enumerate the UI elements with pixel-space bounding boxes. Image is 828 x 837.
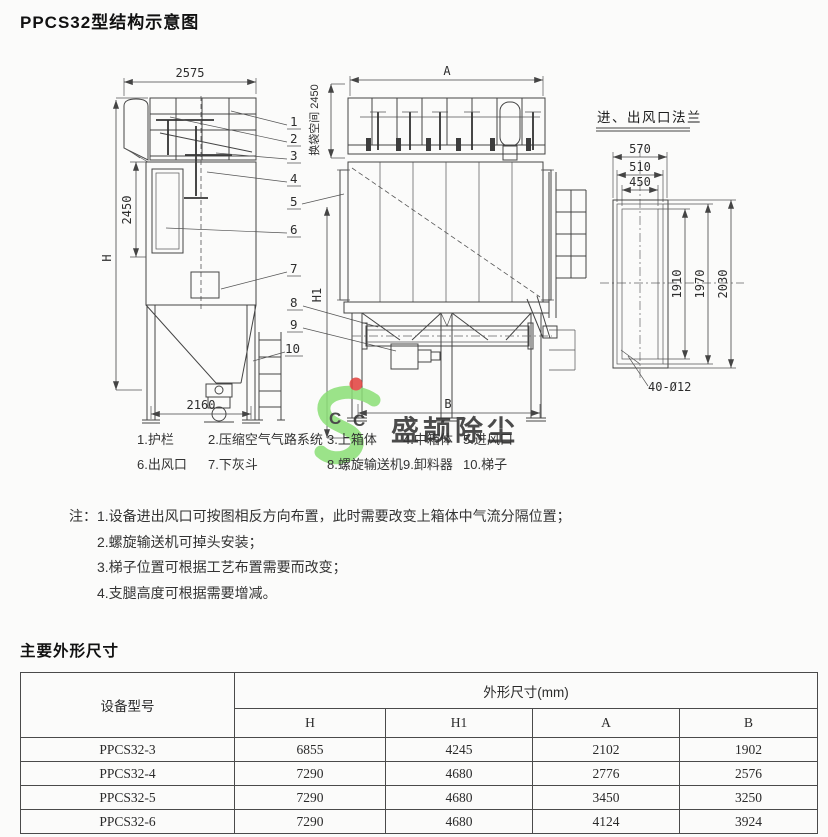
legend-item-10: 10.梯子 (463, 454, 507, 473)
watermark-letter-c1: C (329, 409, 341, 428)
value-cell: 4124 (533, 810, 680, 834)
section-title: 主要外形尺寸 (20, 639, 119, 661)
column-header-b: B (680, 709, 818, 738)
legend-item-2: 2.压缩空气气路系统 (208, 429, 323, 448)
table-row: PPCS32-5 7290 4680 3450 3250 (21, 786, 818, 810)
front-view: A 换袋空间 2450 H1 B (307, 64, 586, 438)
dim-flange-510: 510 (629, 160, 651, 174)
table-row: PPCS32-4 7290 4680 2776 2576 (21, 762, 818, 786)
part-number-1: 1 (290, 114, 298, 129)
note-line-2: 2.螺旋输送机可掉头安装； (97, 530, 571, 556)
dim-flange-2030: 2030 (716, 270, 730, 299)
legend-item-7: 7.下灰斗 (208, 454, 258, 473)
part-number-10: 10 (285, 341, 300, 356)
part-number-3: 3 (290, 148, 298, 163)
part-number-7: 7 (290, 261, 298, 276)
part-number-6: 6 (290, 222, 298, 237)
dim-front-leg-height: H1 (310, 288, 324, 302)
legend-item-4: 4.中箱体 (403, 429, 453, 448)
column-header-a: A (533, 709, 680, 738)
note-line-3: 3.梯子位置可根据工艺布置需要而改变； (97, 555, 571, 581)
part-number-2: 2 (290, 131, 298, 146)
value-cell: 4680 (386, 762, 533, 786)
part-number-9: 9 (290, 317, 298, 332)
model-cell: PPCS32-6 (21, 810, 235, 834)
model-cell: PPCS32-4 (21, 762, 235, 786)
column-header-dimensions-group: 外形尺寸(mm) (235, 673, 818, 709)
notes-label: 注： (69, 504, 97, 606)
part-number-4: 4 (290, 171, 298, 186)
dim-side-top-width: 2575 (176, 66, 205, 80)
note-line-4: 4.支腿高度可根据需要增减。 (97, 581, 571, 607)
dim-flange-450: 450 (629, 175, 651, 189)
value-cell: 4680 (386, 810, 533, 834)
note-line-1: 1.设备进出风口可按图相反方向布置，此时需要改变上箱体中气流分隔位置； (97, 504, 571, 530)
value-cell: 4680 (386, 786, 533, 810)
legend-item-6: 6.出风口 (137, 454, 187, 473)
value-cell: 4245 (386, 738, 533, 762)
structure-diagram: 2575 2450 H 2160 1 2 3 4 5 6 7 8 9 10 (0, 0, 828, 560)
dim-flange-1910: 1910 (670, 270, 684, 299)
value-cell: 2576 (680, 762, 818, 786)
part-number-8: 8 (290, 295, 298, 310)
value-cell: 3250 (680, 786, 818, 810)
column-header-model: 设备型号 (21, 673, 235, 738)
side-view: 2575 2450 H 2160 (100, 66, 285, 423)
flange-detail-view: 进、出风口法兰 570 510 450 1910 1970 2030 40-Ø1… (596, 110, 744, 394)
dim-side-body-height: 2450 (120, 196, 134, 225)
flange-detail-title: 进、出风口法兰 (597, 110, 702, 125)
legend-item-1: 1.护栏 (137, 429, 174, 448)
value-cell: 3924 (680, 810, 818, 834)
dim-side-total-height: H (100, 254, 114, 261)
notes-list: 1.设备进出风口可按图相反方向布置，此时需要改变上箱体中气流分隔位置； 2.螺旋… (97, 504, 571, 606)
dim-flange-1970: 1970 (693, 270, 707, 299)
watermark-red-dot (350, 378, 363, 391)
legend-item-3: 3.上箱体 (327, 429, 377, 448)
dim-side-base-width: 2160 (187, 398, 216, 412)
legend-item-5: 5.进风口 (463, 429, 513, 448)
column-header-h1: H1 (386, 709, 533, 738)
part-number-5: 5 (290, 194, 298, 209)
value-cell: 2776 (533, 762, 680, 786)
dim-front-top-width: A (443, 64, 451, 78)
dim-flange-bolt-holes: 40-Ø12 (648, 380, 691, 394)
table-row: PPCS32-6 7290 4680 4124 3924 (21, 810, 818, 834)
dimensions-table: 设备型号 外形尺寸(mm) H H1 A B PPCS32-3 6855 424… (20, 672, 818, 834)
dim-front-base-width: B (444, 397, 451, 411)
model-cell: PPCS32-3 (21, 738, 235, 762)
model-cell: PPCS32-5 (21, 786, 235, 810)
dim-bag-space: 换袋空间 2450 (307, 84, 321, 156)
value-cell: 7290 (235, 762, 386, 786)
watermark-letter-c2: C (353, 411, 365, 430)
column-header-h: H (235, 709, 386, 738)
legend-item-8: 8.螺旋输送机 (327, 454, 403, 473)
value-cell: 3450 (533, 786, 680, 810)
dim-flange-570: 570 (629, 142, 651, 156)
catalog-page: { "page": { "title": "PPCS32型结构示意图" }, "… (0, 0, 828, 837)
value-cell: 7290 (235, 786, 386, 810)
value-cell: 2102 (533, 738, 680, 762)
legend-item-9: 9.卸料器 (403, 454, 453, 473)
notes-block: 注： 1.设备进出风口可按图相反方向布置，此时需要改变上箱体中气流分隔位置； 2… (69, 504, 571, 606)
value-cell: 1902 (680, 738, 818, 762)
value-cell: 6855 (235, 738, 386, 762)
table-row: PPCS32-3 6855 4245 2102 1902 (21, 738, 818, 762)
value-cell: 7290 (235, 810, 386, 834)
